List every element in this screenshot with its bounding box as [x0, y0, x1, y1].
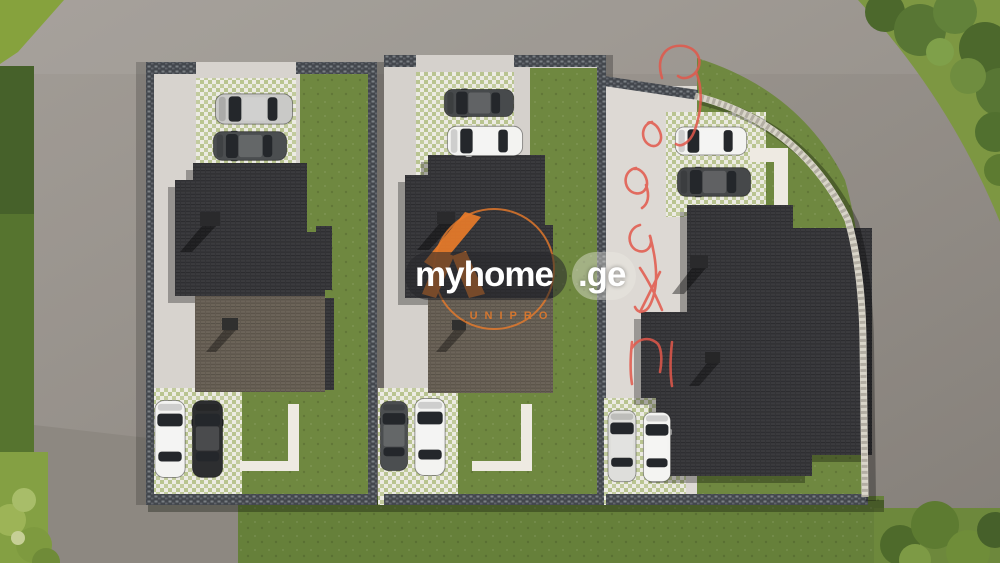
car-plot1-top-silver — [215, 93, 292, 125]
car-plot1-bottom-black — [191, 401, 223, 478]
plot-2-garden-path-2 — [472, 461, 532, 471]
left-lawn-strip-lower — [0, 214, 34, 454]
plot-2-chimney-1 — [437, 212, 455, 224]
plot-1-top-wall-right — [296, 62, 372, 74]
plot-1-top-wall-left — [148, 62, 196, 74]
car-plot3-top-darkgray — [677, 167, 750, 198]
plot-3-chimney-2 — [705, 352, 720, 363]
car-plot3-top-white — [675, 126, 746, 156]
plot-2-garden-path — [521, 404, 532, 466]
plot-2-chimney-2 — [452, 320, 466, 330]
car-plot1-top-darkgray — [213, 131, 286, 162]
plot-1-garden-path-2 — [240, 461, 299, 471]
car-plot2-top-white — [447, 125, 522, 156]
plot-1-roof-upper — [175, 163, 325, 296]
plot-3-walkway-top — [750, 148, 788, 162]
plot-2-top-wall-left — [384, 55, 416, 67]
plot-2-bottom-wall — [384, 494, 602, 505]
plot-2-roof-upper — [405, 155, 553, 298]
car-plot2-bottom-darkgray — [380, 401, 409, 470]
boundary-wall-1-2 — [368, 62, 377, 505]
plot-3-bottom-wall — [606, 494, 868, 505]
aerial-render: myhome .ge UNIPRO — [0, 0, 1000, 563]
plot-1-bottom-wall — [148, 494, 372, 505]
car-plot1-bottom-white — [154, 400, 186, 477]
site-plan-scene — [0, 0, 1000, 563]
car-plot3-bottom-white — [643, 412, 672, 481]
plot-1-garden-path — [288, 404, 299, 466]
car-plot2-top-darkgray — [444, 89, 513, 118]
plot-1-chimney-1 — [200, 212, 220, 226]
car-plot3-bottom-silver — [607, 410, 637, 481]
left-lawn-strip-upper — [0, 66, 34, 216]
plot-1-chimney-2 — [222, 318, 238, 330]
plot-1-left-wall — [146, 62, 154, 505]
car-plot2-bottom-white — [414, 398, 446, 475]
plot-2-top-wall-right — [514, 55, 602, 67]
plot-3-chimney-1 — [690, 255, 708, 268]
